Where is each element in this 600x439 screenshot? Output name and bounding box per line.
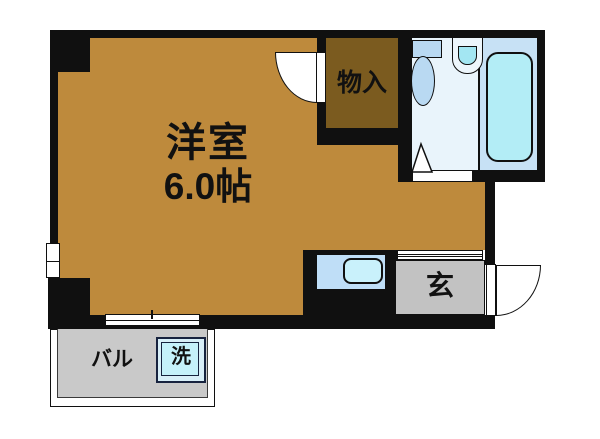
bathtub-icon (486, 52, 533, 162)
floor-plan: 玄 バル 洗 物入 洋室 6.0帖 (0, 0, 600, 439)
entry-door-leaf (486, 264, 496, 316)
entry-door-swing-icon (496, 265, 541, 316)
balcony-window-tick (151, 310, 153, 319)
main-room-label: 洋室 6.0帖 (108, 122, 308, 207)
washbasin-bowl-icon (458, 46, 477, 65)
balcony-label: バル (72, 349, 152, 371)
bathroom-door-wedge-icon (406, 139, 438, 175)
entrance-area: 玄 (395, 260, 485, 315)
wall-inner-right (485, 170, 495, 265)
washing-machine-icon: 洗 (156, 337, 206, 383)
window-left-pane-bottom (46, 261, 60, 278)
wall-bath-right (537, 30, 545, 182)
main-room-name: 洋室 (108, 122, 308, 164)
closet-label: 物入 (324, 70, 400, 96)
main-room-size: 6.0帖 (108, 168, 308, 207)
balcony-area: バル 洗 (57, 329, 208, 398)
kitchen-sink-icon (343, 258, 383, 284)
entrance-sliding-door (397, 250, 483, 260)
window-left-pane-top (46, 243, 60, 262)
entrance-label: 玄 (396, 271, 484, 300)
toilet-tank-icon (412, 40, 442, 58)
toilet-bowl-icon (411, 56, 435, 106)
washer-label: 洗 (158, 347, 204, 368)
